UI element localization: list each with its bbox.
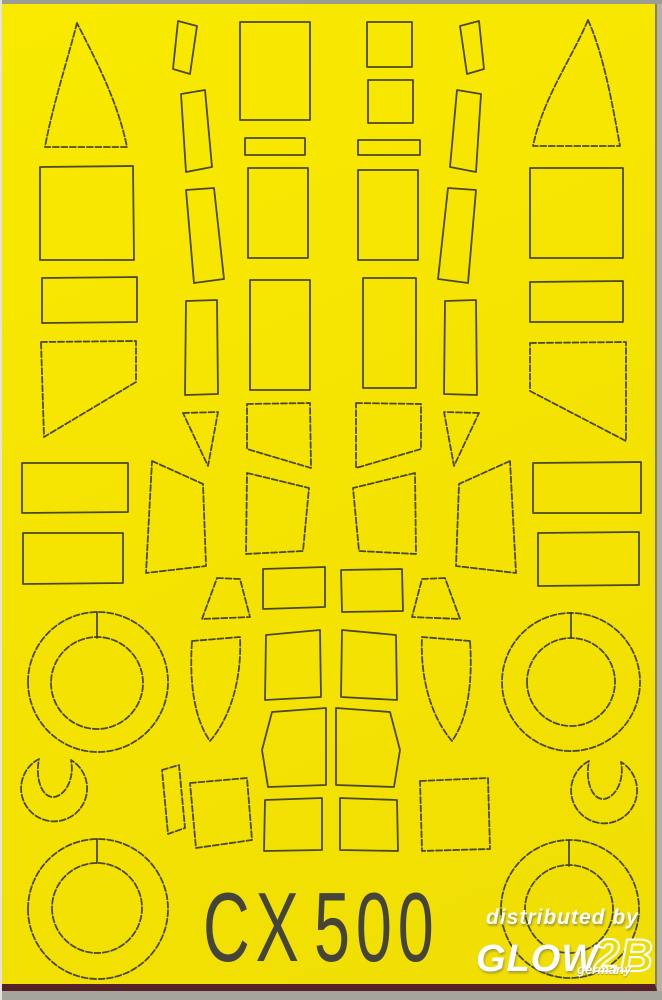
mask-rect-a2 <box>42 277 137 323</box>
mask-window-row3-right <box>340 798 398 851</box>
mask-rect-a4 <box>23 533 123 584</box>
mask-window-row0-right <box>341 569 403 612</box>
mask-quad-d6 <box>356 403 421 468</box>
mask-strip-b1 <box>173 21 197 74</box>
mask-sliver-bottom-left <box>162 765 185 834</box>
mask-square-d1 <box>367 22 412 67</box>
mask-trapezoid-right <box>412 578 460 619</box>
mask-rect-d3 <box>358 140 420 155</box>
mask-wheel-mid-left-inner <box>51 637 143 729</box>
mask-quad-bottom-right <box>420 778 490 851</box>
mask-rect-b4 <box>185 300 218 395</box>
mask-windscreen-left <box>45 23 127 147</box>
mask-panel-left <box>146 461 206 573</box>
mask-strip-e1 <box>460 21 484 74</box>
mask-rect-f2 <box>530 281 623 322</box>
mask-rect-c3 <box>248 168 308 258</box>
mask-wheel-bottom-left-inner <box>52 863 142 953</box>
mask-hub-left <box>21 759 87 821</box>
mask-rect-f4 <box>538 532 639 586</box>
mask-rect-d4 <box>358 170 418 260</box>
mask-rect-d5 <box>363 278 416 388</box>
product-code: CX500 <box>203 878 440 976</box>
mask-window-row2-right <box>336 708 400 787</box>
mask-window-row1-left <box>265 630 321 700</box>
mask-blade-right <box>422 637 471 741</box>
mask-windscreen-right <box>533 20 620 146</box>
mask-rect-c4 <box>250 280 310 390</box>
mask-strip-e3 <box>438 188 476 283</box>
product-code-number: 500 <box>314 872 440 982</box>
mask-wheel-bottom-left-outer <box>28 839 168 979</box>
mask-blade-left <box>191 637 240 741</box>
mask-rect-f3 <box>533 462 641 513</box>
mask-quad-d7 <box>353 473 416 554</box>
mask-rect-c2 <box>245 138 305 155</box>
mask-square-d2 <box>368 80 413 123</box>
mask-triangle-e5 <box>444 412 479 466</box>
mask-rect-a3 <box>22 463 128 513</box>
mask-window-row0-left <box>263 567 325 609</box>
product-code-prefix: CX <box>203 872 305 982</box>
mask-rect-f1 <box>530 168 623 258</box>
watermark-distributed-by: distributed by <box>486 906 639 930</box>
mask-triangle-b5 <box>183 412 218 466</box>
mask-strip-b3 <box>186 188 224 283</box>
scan-background: CX500 distributed by GLOW2B germany <box>0 0 662 1000</box>
mask-window-row1-right <box>341 630 397 700</box>
mask-wheel-mid-right-inner <box>527 638 615 726</box>
mask-window-row2-left <box>262 708 326 787</box>
mask-quad-c6 <box>246 473 309 554</box>
mask-strip-b2 <box>181 90 212 172</box>
mask-rect-a1 <box>40 166 134 260</box>
watermark-country: germany <box>577 962 631 977</box>
mask-strip-e2 <box>450 90 481 172</box>
mask-pentagon-right <box>530 342 626 441</box>
mask-trapezoid-left <box>202 578 250 619</box>
mask-quad-bottom-left <box>190 778 252 848</box>
mask-hub-right <box>571 761 637 823</box>
mask-panel-right <box>456 461 516 573</box>
mask-rect-c1 <box>240 22 310 120</box>
mask-quad-c5 <box>247 403 311 468</box>
mask-window-row3-left <box>264 798 322 851</box>
mask-outlines <box>0 0 662 1000</box>
mask-rect-e4 <box>444 300 477 395</box>
mask-wheel-mid-left-outer <box>28 612 168 752</box>
mask-pentagon-left <box>41 341 136 437</box>
